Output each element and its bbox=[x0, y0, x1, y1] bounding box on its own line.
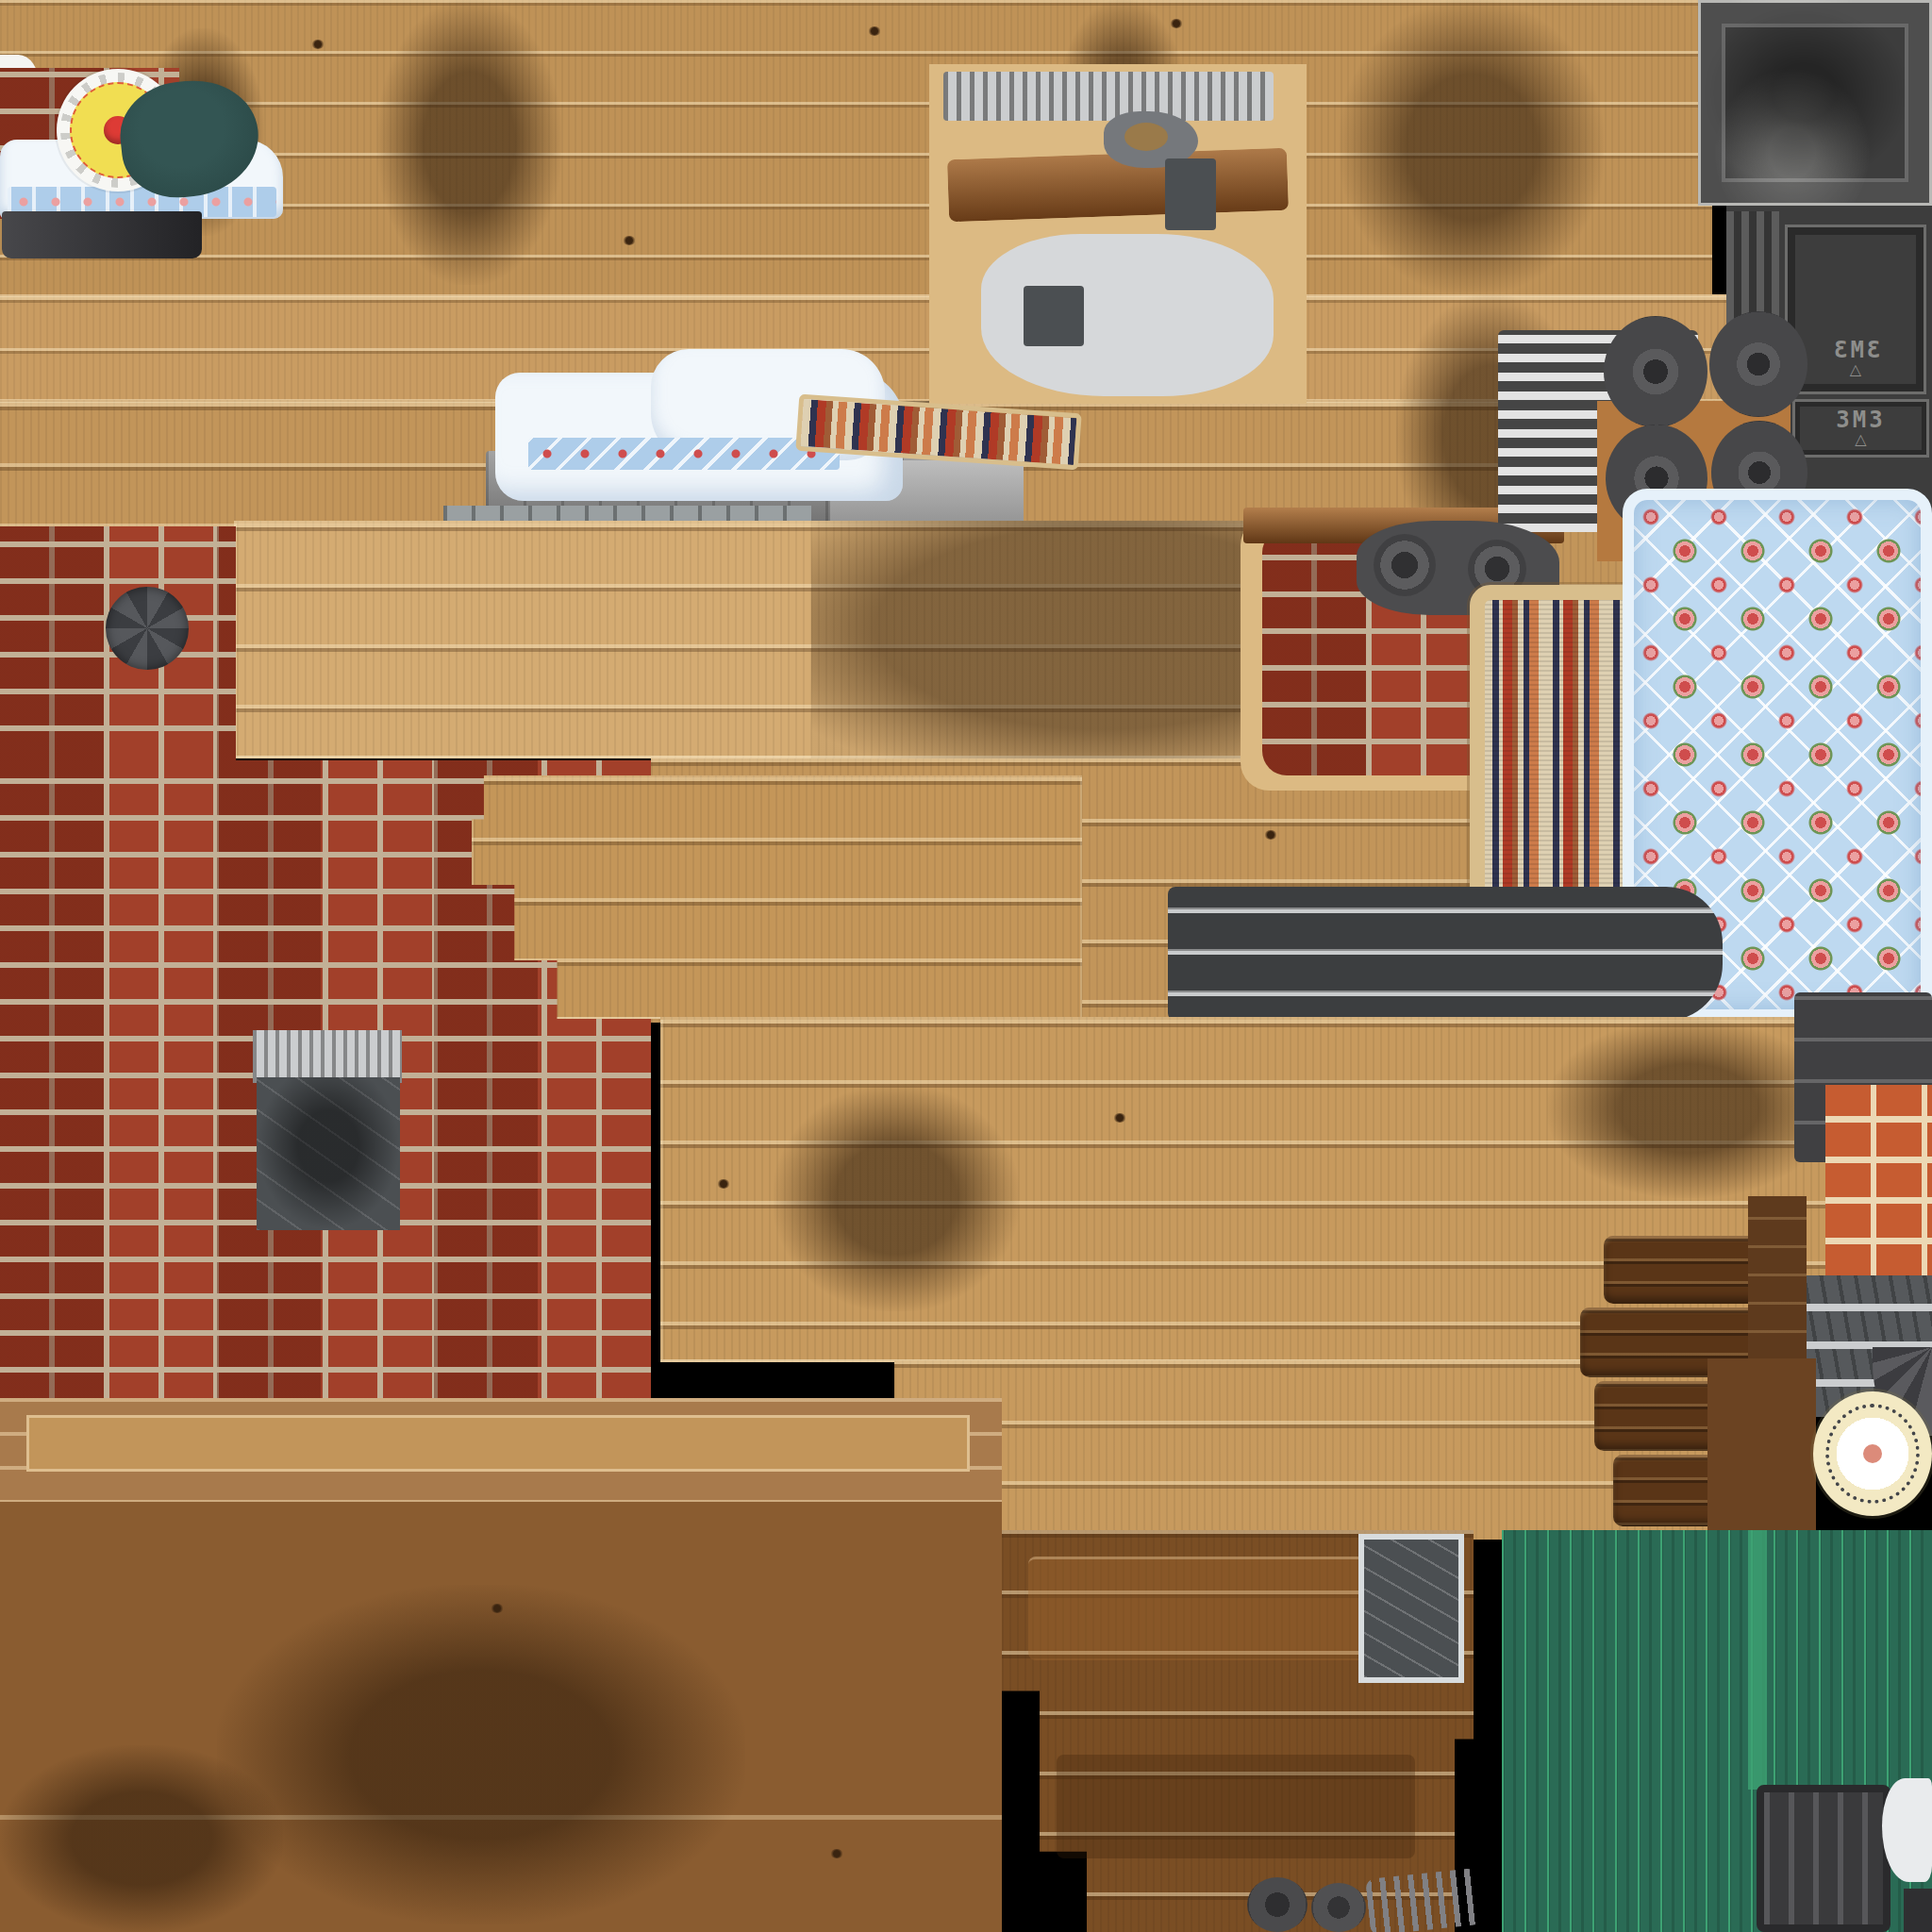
wood-knot bbox=[491, 1604, 504, 1613]
metal-parts-cluster bbox=[929, 64, 1307, 404]
wood-knot bbox=[1113, 1113, 1126, 1123]
crate-stencil-triangle: △ bbox=[1855, 431, 1866, 448]
coil-springs bbox=[1365, 1868, 1482, 1932]
metal-threshold bbox=[1168, 887, 1723, 1021]
ammo-crate-lid bbox=[1698, 0, 1932, 206]
wood-knot bbox=[1170, 19, 1183, 28]
soot-smudge bbox=[0, 1745, 283, 1932]
hub-ring bbox=[1374, 534, 1436, 596]
enamel-plate-clock bbox=[1813, 1391, 1932, 1516]
striped-metal-plate bbox=[943, 72, 1274, 121]
crate-stencil-triangle: △ bbox=[1850, 361, 1861, 378]
white-fabric-blob bbox=[1882, 1778, 1932, 1882]
crate-stencil-text: 3M3 bbox=[1831, 339, 1880, 361]
dark-metal-plate bbox=[1024, 286, 1084, 346]
orange-brick-column bbox=[1825, 1085, 1932, 1278]
ammo-crate-side: 3M3 △ bbox=[1792, 399, 1929, 458]
dark-metal-plate bbox=[1165, 158, 1216, 230]
wood-knot bbox=[830, 1849, 843, 1858]
scratched-metal-plate bbox=[257, 1077, 400, 1230]
stepped-wood-planks bbox=[472, 775, 1082, 1019]
bed-base-dark bbox=[2, 211, 202, 258]
plate-center-dot bbox=[1863, 1444, 1882, 1463]
green-bright-seam bbox=[1748, 1530, 1767, 1790]
tool-oval-detail bbox=[1124, 123, 1168, 151]
wood-knot bbox=[717, 1179, 730, 1189]
soot-smudge bbox=[774, 1085, 1019, 1311]
wood-band-inset bbox=[26, 1415, 970, 1472]
wood-knot bbox=[623, 236, 636, 245]
machine-wheel bbox=[1604, 316, 1707, 427]
crate-stencil-text: 3M3 bbox=[1836, 408, 1885, 431]
ridged-metal-crate bbox=[1757, 1785, 1890, 1932]
machine-wheel bbox=[1709, 311, 1807, 417]
plank-tier bbox=[1057, 1755, 1415, 1858]
soot-smudge-large bbox=[217, 1585, 745, 1924]
wood-knot bbox=[311, 40, 325, 49]
bordered-grey-plate bbox=[1358, 1534, 1464, 1683]
metal-plate-rim bbox=[253, 1030, 402, 1083]
soot-smudge bbox=[377, 0, 561, 285]
soot-smudge bbox=[1340, 0, 1604, 294]
wood-knot bbox=[1264, 830, 1277, 840]
wheel-disc bbox=[1247, 1877, 1307, 1932]
pinwheel-vent bbox=[106, 587, 189, 670]
wheel-disc bbox=[1311, 1883, 1366, 1932]
dark-corner-part bbox=[1904, 1889, 1932, 1932]
bedding-floral-hem bbox=[528, 438, 840, 470]
soot-smudge bbox=[1547, 1019, 1830, 1198]
wood-knot bbox=[868, 26, 881, 36]
dark-wood-patch bbox=[1707, 1358, 1816, 1530]
texture-atlas: 3M3 △ 3M3 △ bbox=[0, 0, 1932, 1932]
